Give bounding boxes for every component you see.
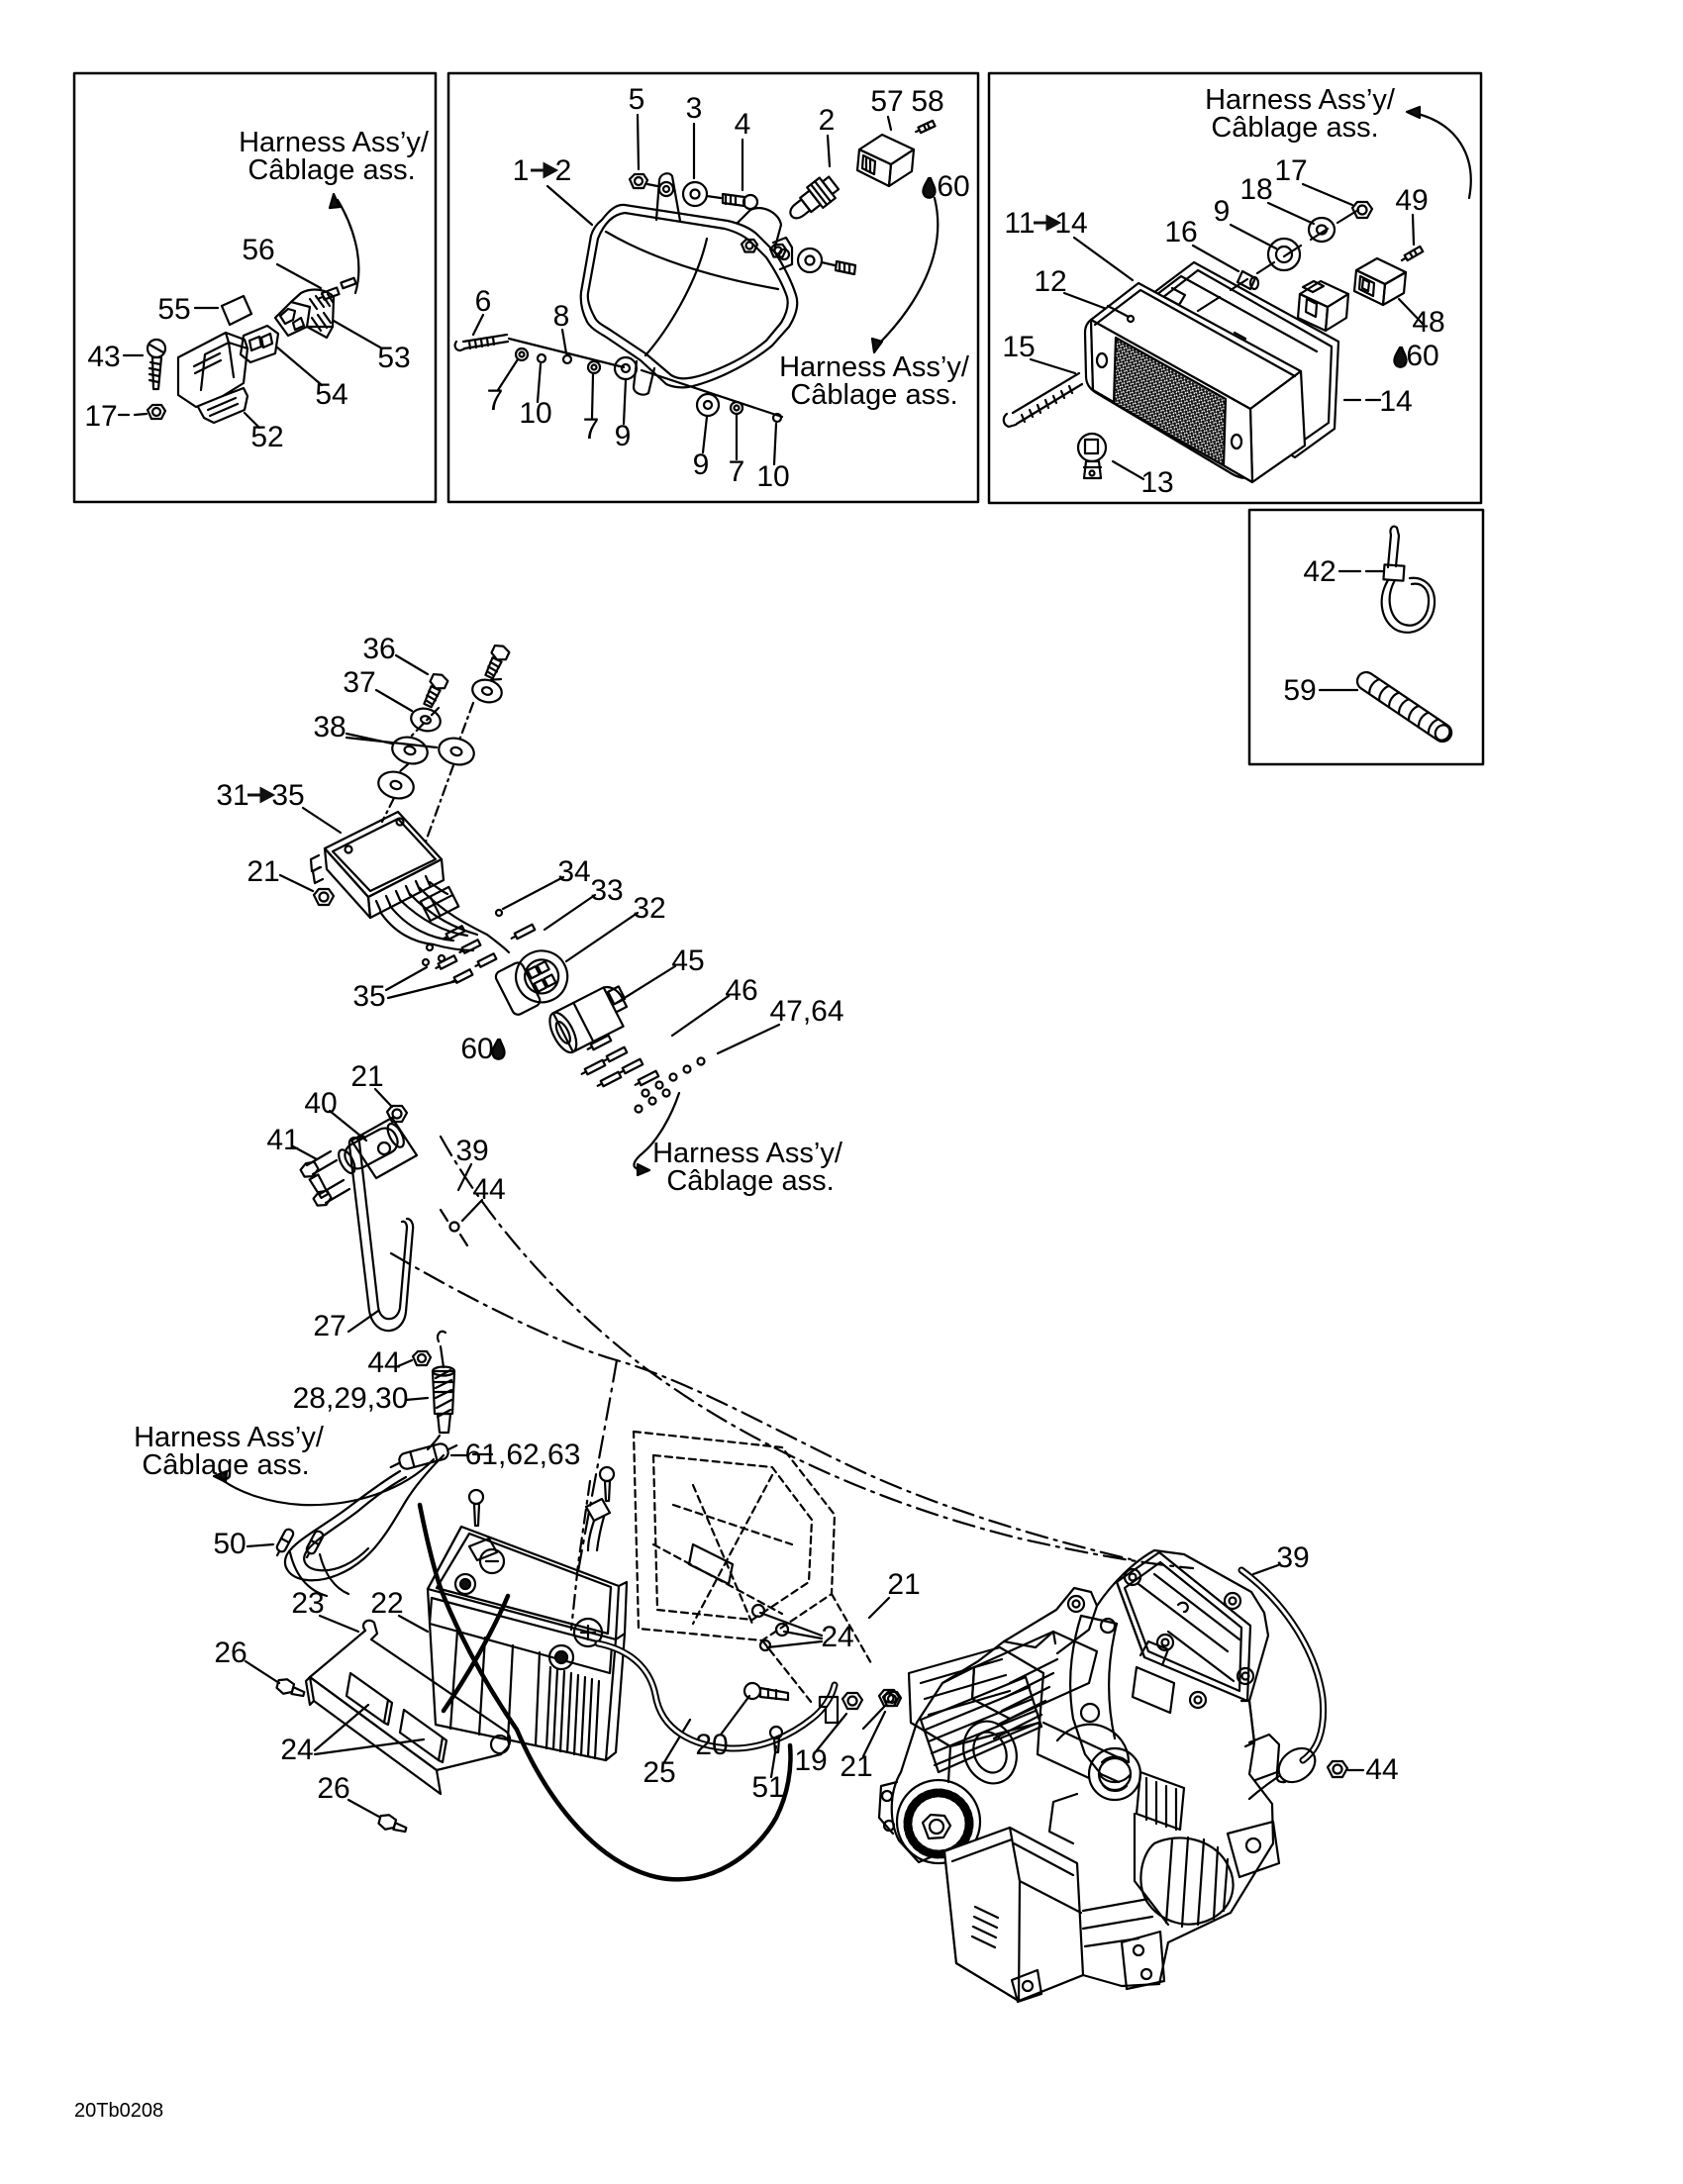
svg-text:11: 11: [1004, 207, 1035, 240]
svg-text:38: 38: [313, 711, 346, 744]
svg-text:28,29,30: 28,29,30: [293, 1382, 409, 1415]
svg-text:14: 14: [1379, 385, 1412, 418]
svg-text:60: 60: [1406, 340, 1438, 372]
svg-text:7: 7: [583, 413, 600, 446]
svg-text:57: 57: [870, 85, 903, 118]
svg-text:Câblage ass.: Câblage ass.: [666, 1165, 834, 1197]
svg-text:41: 41: [266, 1124, 299, 1156]
svg-text:50: 50: [213, 1528, 246, 1560]
svg-text:4: 4: [735, 108, 751, 141]
svg-text:9: 9: [615, 420, 632, 452]
svg-text:12: 12: [1034, 265, 1066, 298]
svg-text:39: 39: [455, 1135, 488, 1167]
svg-text:47,64: 47,64: [769, 995, 843, 1028]
svg-text:51: 51: [751, 1771, 784, 1804]
svg-text:60: 60: [460, 1033, 493, 1065]
svg-text:10: 10: [519, 397, 551, 430]
svg-text:13: 13: [1140, 466, 1173, 499]
svg-text:48: 48: [1412, 306, 1444, 339]
svg-text:44: 44: [1365, 1753, 1398, 1786]
svg-text:21: 21: [247, 855, 279, 888]
svg-text:39: 39: [1276, 1541, 1309, 1574]
svg-text:58: 58: [911, 85, 943, 118]
svg-text:6: 6: [475, 285, 492, 318]
svg-text:26: 26: [317, 1772, 349, 1805]
svg-text:Câblage ass.: Câblage ass.: [1211, 112, 1378, 144]
svg-text:54: 54: [315, 378, 347, 411]
svg-text:46: 46: [725, 974, 757, 1007]
svg-text:56: 56: [242, 234, 274, 266]
svg-text:31: 31: [216, 779, 248, 812]
svg-text:27: 27: [313, 1310, 346, 1342]
svg-text:24: 24: [821, 1621, 853, 1653]
svg-text:36: 36: [362, 633, 395, 665]
svg-text:37: 37: [343, 666, 375, 699]
svg-text:Câblage ass.: Câblage ass.: [790, 379, 957, 411]
svg-text:17: 17: [1274, 154, 1307, 187]
svg-text:20Tb0208: 20Tb0208: [74, 2100, 163, 2122]
svg-text:35: 35: [352, 980, 385, 1013]
svg-text:52: 52: [250, 421, 283, 453]
svg-text:40: 40: [304, 1087, 337, 1120]
svg-text:7: 7: [487, 384, 504, 417]
svg-text:Câblage ass.: Câblage ass.: [247, 154, 415, 186]
svg-text:21: 21: [840, 1750, 872, 1783]
svg-text:33: 33: [590, 874, 623, 907]
svg-text:24: 24: [280, 1734, 313, 1766]
svg-text:17: 17: [84, 400, 117, 433]
svg-text:49: 49: [1395, 184, 1428, 217]
svg-text:44: 44: [472, 1173, 505, 1206]
svg-text:9: 9: [693, 448, 710, 481]
svg-text:5: 5: [629, 83, 645, 116]
svg-text:45: 45: [671, 944, 704, 977]
svg-text:7: 7: [729, 455, 745, 488]
svg-text:21: 21: [350, 1060, 383, 1093]
svg-text:55: 55: [157, 293, 190, 326]
svg-text:35: 35: [271, 779, 304, 812]
svg-text:3: 3: [686, 92, 703, 125]
svg-text:2: 2: [819, 104, 836, 137]
svg-text:1: 1: [513, 154, 530, 187]
svg-text:21: 21: [887, 1568, 920, 1601]
svg-text:10: 10: [756, 460, 789, 493]
svg-text:43: 43: [87, 341, 120, 373]
svg-text:18: 18: [1239, 173, 1272, 206]
svg-text:20: 20: [695, 1729, 728, 1761]
svg-text:61,62,63: 61,62,63: [465, 1439, 581, 1471]
svg-text:44: 44: [367, 1346, 400, 1379]
svg-text:26: 26: [214, 1637, 247, 1669]
svg-text:22: 22: [370, 1587, 403, 1620]
svg-text:60: 60: [937, 170, 969, 203]
svg-text:42: 42: [1303, 555, 1336, 588]
svg-text:34: 34: [557, 855, 590, 888]
svg-text:19: 19: [794, 1744, 827, 1777]
svg-text:23: 23: [291, 1587, 324, 1620]
svg-text:Câblage ass.: Câblage ass.: [142, 1449, 309, 1481]
svg-text:15: 15: [1002, 331, 1035, 363]
svg-text:59: 59: [1283, 674, 1316, 707]
svg-text:53: 53: [377, 342, 410, 374]
svg-text:16: 16: [1164, 216, 1197, 248]
svg-text:25: 25: [643, 1756, 675, 1789]
svg-text:32: 32: [633, 892, 665, 925]
svg-text:8: 8: [553, 300, 570, 333]
svg-text:9: 9: [1214, 195, 1231, 228]
